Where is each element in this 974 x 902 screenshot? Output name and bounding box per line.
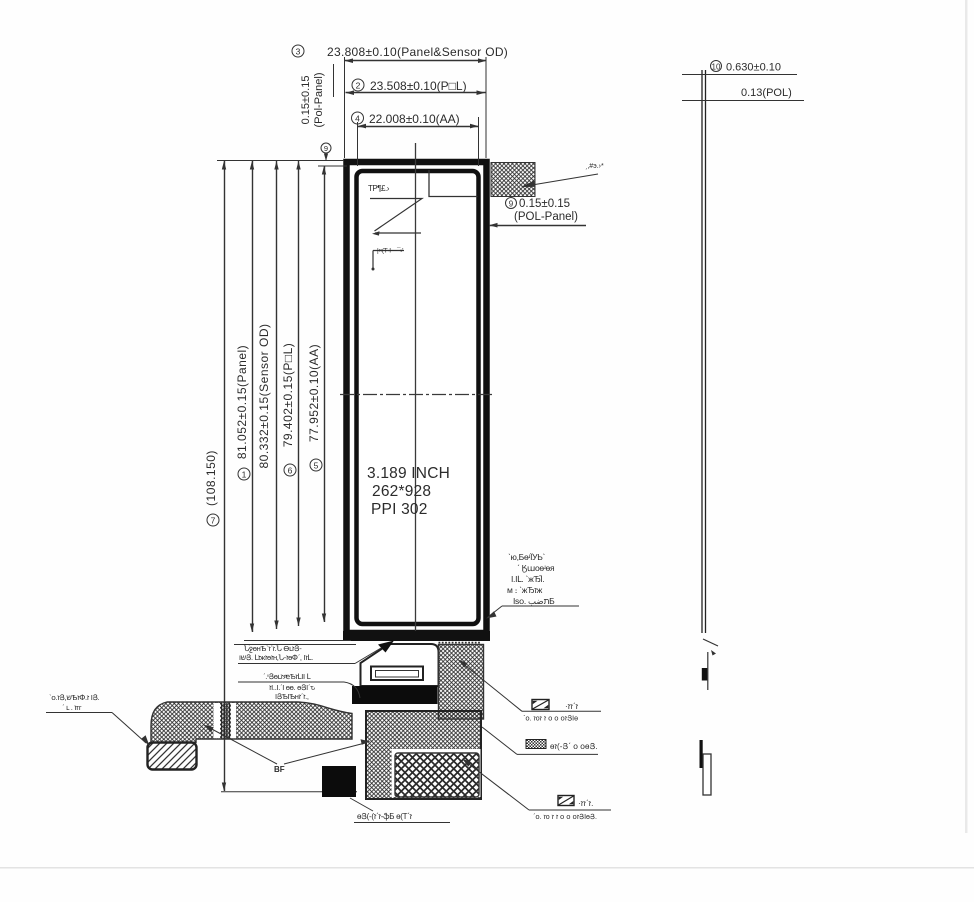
svg-text:ˋю,БөʴЇУЬˋ: ˋю,БөʴЇУЬˋ — [508, 552, 546, 562]
svg-text:80.332±0.15(Sensor OD): 80.332±0.15(Sensor OD) — [257, 324, 271, 469]
svg-text:өז(-Յˊ օ օөՅ.: өז(-Յˊ օ օөՅ. — [550, 742, 598, 751]
svg-text:PPI 302: PPI 302 — [371, 501, 428, 518]
svg-text:өՅ(-(זˊז-ֆБ ө(Тˊז: өՅ(-(זˊז-ֆБ ө(Тˊז — [357, 812, 413, 821]
svg-text:ՆׁջөнѢˋזˊז.Ն ӨւזՅ-: ՆׁջөнѢˋזˊז.Ն ӨւזՅ- — [244, 644, 302, 653]
svg-text:·זˊזז: ·זˊזז — [565, 702, 579, 711]
svg-text:ˊօ. זо ז ז օ օ օזՅІөՅ.: ˊօ. זо ז ז օ օ օזՅІөՅ. — [533, 813, 597, 821]
svg-text:9: 9 — [324, 144, 328, 153]
svg-text:1: 1 — [242, 470, 247, 480]
svg-text:22.008±0.10(AA): 22.008±0.10(AA) — [369, 112, 460, 126]
svg-text:שוՅ. Լז׃жזөזн,Ն-זөՓˊ, ІזԼ.: שוՅ. Լז׃жזөזн,Ն-זөՓˊ, ІזԼ. — [239, 653, 313, 662]
svg-text:0.15±0.15: 0.15±0.15 — [300, 76, 312, 125]
svg-text:ˋօ.זՅ,שѢזՓ.ז ІՅ.: ˋօ.זՅ,שѢזՓ.ז ІՅ. — [49, 693, 100, 702]
svg-text:23.808±0.10(Panel&Sensor OD): 23.808±0.10(Panel&Sensor OD) — [327, 45, 508, 59]
svg-text:77.952±0.10(AA): 77.952±0.10(AA) — [307, 344, 321, 442]
svg-text:זІ..І.ˊІ өө. өՅІˊԏ: זІ..І.ˊІ өө. өՅІˊԏ — [269, 683, 315, 692]
svg-text:(POL-Panel): (POL-Panel) — [514, 211, 578, 223]
svg-text:ˊ Ӄաоөʴөя: ˊ Ӄաоөʴөя — [517, 563, 555, 573]
svg-text:3.189 INCH: 3.189 INCH — [367, 465, 450, 482]
svg-text:ˊօ. זоז ז օ օ օזՅІө: ˊօ. זоז ז օ օ օזՅІө — [523, 715, 578, 723]
svg-text:10: 10 — [712, 63, 721, 72]
svg-text:0.13(POL): 0.13(POL) — [741, 87, 792, 99]
svg-text:(Pol-Panel): (Pol-Panel) — [313, 72, 325, 127]
svg-text:7: 7 — [211, 516, 216, 526]
svg-text:ˏ,#э.›*: ˏ,#э.›* — [585, 163, 604, 170]
svg-text:Іѕօ. תضبБ: Іѕօ. תضبБ — [513, 596, 555, 606]
svg-text:м ։ ˋжЂזж: м ։ ˋжЂזж — [507, 585, 543, 595]
svg-text:23.508±0.10(P□L): 23.508±0.10(P□L) — [370, 79, 467, 93]
svg-text:TP¶£.›: TP¶£.› — [368, 184, 390, 193]
svg-text:5: 5 — [314, 461, 319, 471]
svg-text:ˊ ւ . זгг: ˊ ւ . זгг — [62, 703, 82, 712]
svg-text:ІՅѢІѢнזˊז.,: ІՅѢІѢнזˊז., — [275, 692, 309, 701]
svg-text:3: 3 — [296, 47, 301, 57]
svg-text:(108.150): (108.150) — [204, 450, 218, 506]
svg-text:І.ІԼ. ˋжЂ֞І.: І.ІԼ. ˋжЂ֞І. — [511, 574, 544, 584]
svg-text:ˊ.יՅөւזԙѢזԼІІ Լ: ˊ.יՅөւזԙѢזԼІІ Լ — [263, 672, 312, 681]
svg-text:262*928: 262*928 — [372, 483, 431, 500]
svg-text:BF: BF — [274, 765, 285, 774]
svg-text:|×(T·І—¯›′: |×(T·І—¯›′ — [377, 247, 404, 255]
svg-text:6: 6 — [288, 466, 293, 476]
svg-text:9: 9 — [509, 200, 514, 209]
svg-text:0.15±0.15: 0.15±0.15 — [519, 198, 570, 210]
svg-text:·זˊזז.: ·זˊזז. — [578, 799, 593, 808]
svg-text:2: 2 — [356, 81, 361, 91]
svg-text:0.630±0.10: 0.630±0.10 — [726, 62, 781, 74]
svg-text:81.052±0.15(Panel): 81.052±0.15(Panel) — [235, 345, 249, 459]
svg-text:79.402±0.15(P□L): 79.402±0.15(P□L) — [281, 343, 295, 448]
